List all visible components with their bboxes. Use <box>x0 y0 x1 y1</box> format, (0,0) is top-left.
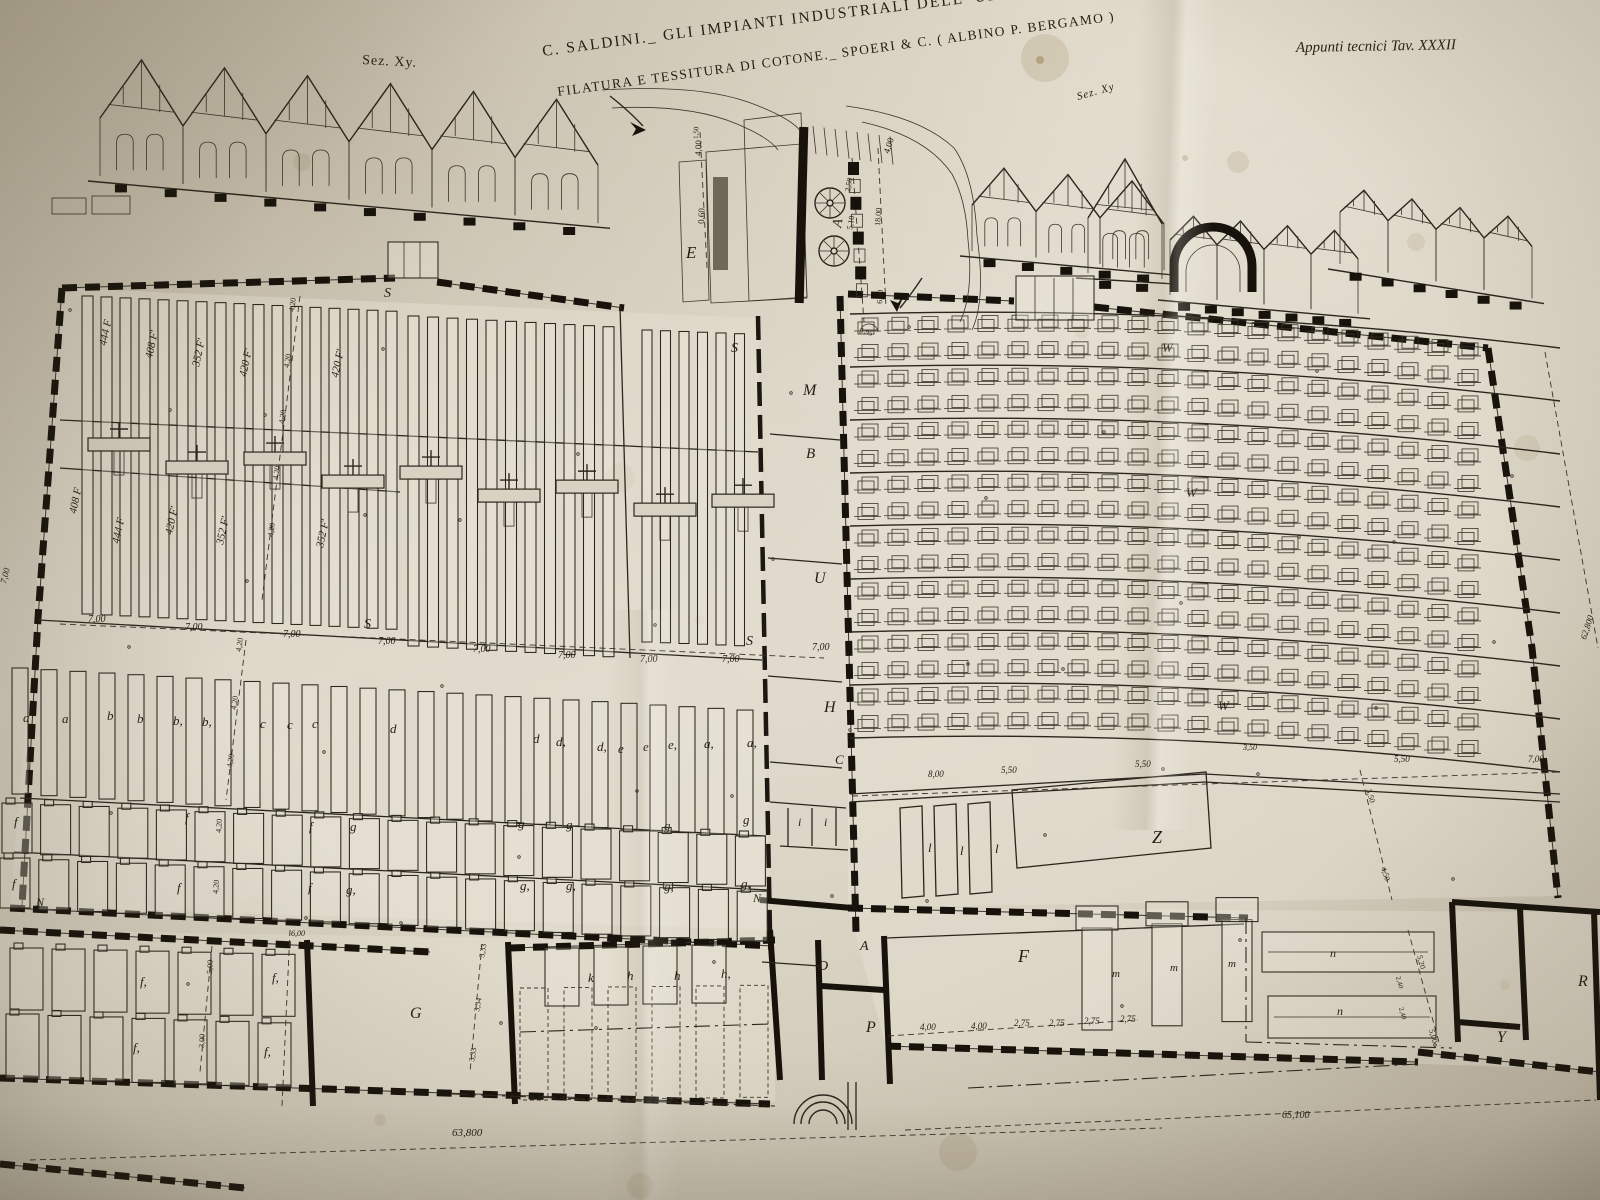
plan-label: d, <box>597 739 607 754</box>
machine <box>697 834 727 884</box>
plan-label: 7,00 <box>1528 754 1544 764</box>
plan-label: n <box>1337 1004 1343 1018</box>
plan-label: b <box>137 711 144 726</box>
plan-label: D <box>817 959 828 974</box>
plan-label: d <box>390 721 397 736</box>
plan-label: 18,00 <box>873 208 883 227</box>
plan-label: 4,00 <box>920 1022 936 1032</box>
plan-label: 4,00 <box>881 136 896 155</box>
plan-label: f, <box>133 1040 140 1055</box>
paper-stain <box>1036 56 1044 64</box>
shaft-bracket <box>478 489 540 502</box>
plan-label: C <box>835 752 844 767</box>
plan-label: 2,75 <box>1049 1018 1065 1028</box>
plan-label: c <box>312 716 318 731</box>
machine <box>155 865 185 915</box>
spinning-machine-row <box>563 700 579 826</box>
plan-label: 2,75 <box>1120 1014 1136 1024</box>
spinning-machine-row <box>418 692 434 818</box>
spinning-machine-row <box>389 690 405 816</box>
shaft-bracket <box>634 503 696 516</box>
plan-label: B <box>806 446 815 462</box>
machine <box>427 877 457 927</box>
plan-label: a, <box>704 736 714 751</box>
machine <box>220 953 253 1015</box>
machine <box>310 872 340 922</box>
plan-label: d, <box>556 734 566 749</box>
plan-label: 7,00 <box>185 622 203 633</box>
spinning-machine-row <box>621 703 637 829</box>
plan-label: m <box>1112 968 1120 980</box>
paper-stain <box>1182 155 1188 161</box>
plan-label: 7,00 <box>473 644 491 655</box>
plan-label: 8,00 <box>928 769 944 779</box>
spinning-machine-row <box>447 693 463 819</box>
plan-label: 7,00 <box>640 654 658 665</box>
plan-canvas: EA4,001,500,604,002,505,1018,006,001,954… <box>0 0 1600 1200</box>
plan-label: 6,00 <box>875 290 885 305</box>
machine <box>118 808 148 858</box>
machine <box>78 861 108 911</box>
section-right-a <box>960 168 1176 282</box>
shaft-bracket <box>712 494 774 507</box>
plan-label: 4,00 <box>693 139 704 156</box>
spinning-machine-row <box>506 321 517 651</box>
plan-label: 65,100 <box>1282 1110 1310 1121</box>
plan-label: M <box>802 382 818 399</box>
section-right-saw2 <box>1328 190 1544 309</box>
spinning-machine-row <box>486 320 497 650</box>
machine <box>156 810 186 860</box>
plan-label: l <box>995 841 999 856</box>
plan-label: 5,00 <box>205 960 215 974</box>
machine <box>465 824 495 874</box>
spinning-machine-row <box>177 301 188 619</box>
plan-label: S <box>384 286 391 301</box>
plan-label: m <box>1228 958 1236 970</box>
plan-label: g <box>664 818 671 833</box>
spinning-machine-row <box>679 707 695 833</box>
shaft-bracket <box>88 438 150 451</box>
plan-label: g, <box>520 878 530 893</box>
machine <box>1082 928 1112 1030</box>
machine <box>643 946 677 1004</box>
plan-drawing: EA4,001,500,604,002,505,1018,006,001,954… <box>0 34 1600 1199</box>
spinning-machine-row <box>186 678 202 804</box>
machine <box>542 827 572 877</box>
spinning-machine-row <box>215 680 231 806</box>
plan-label: g <box>350 819 357 834</box>
spinning-machine-row <box>386 311 397 629</box>
machine <box>545 948 579 1006</box>
spinning-machine-row <box>70 671 86 797</box>
plate-reference: Appunti tecnici Tav. XXXII <box>1295 37 1457 56</box>
section-left <box>88 60 610 235</box>
flow-arrow <box>610 96 643 126</box>
plan-label: 2,75 <box>1014 1018 1030 1028</box>
spinning-machine-row <box>525 322 536 652</box>
plan-label: 5,50 <box>1394 754 1410 764</box>
plan-label: c <box>260 716 266 731</box>
plan-label: S <box>746 634 753 649</box>
machine <box>620 831 650 881</box>
paper-stain <box>1407 233 1425 251</box>
plan-label: b, <box>202 714 212 729</box>
machine <box>698 889 728 939</box>
shaft-bracket <box>400 466 462 479</box>
machine <box>582 884 612 934</box>
paper-stain <box>627 1173 653 1199</box>
plan-label: l <box>928 840 932 855</box>
spinning-machine-row <box>716 333 726 645</box>
plan-label: 63,800 <box>452 1127 483 1139</box>
spinning-machine-row <box>128 675 144 801</box>
plan-label: a <box>23 710 30 725</box>
plan-label: A <box>859 939 869 954</box>
machine <box>41 805 71 855</box>
plan-label: 7,00 <box>722 654 740 665</box>
plan-label: a, <box>747 735 757 750</box>
plan-label: i <box>798 815 801 829</box>
plan-label: P <box>865 1019 876 1036</box>
plan-label: e <box>643 739 649 754</box>
machine <box>1152 924 1182 1026</box>
plan-label: 1,50 <box>692 126 700 139</box>
spinning-machine-row <box>467 319 478 649</box>
spinning-machine-row <box>99 673 115 799</box>
plan-label: 3,00 <box>197 1034 207 1048</box>
plan-label: g <box>566 817 573 832</box>
spinning-machine-row <box>331 687 347 813</box>
plan-fragment <box>52 198 86 214</box>
plan-label: 5,50 <box>1001 765 1017 775</box>
machine <box>427 822 457 872</box>
plan-label: S <box>731 341 738 356</box>
plan-label: 5,10 <box>845 215 856 230</box>
plan-label: W <box>1186 485 1198 500</box>
machine <box>48 1015 81 1079</box>
spinning-machine-row <box>698 332 708 644</box>
plan-label: 7,00 <box>0 566 12 584</box>
plan-label: l <box>960 843 964 858</box>
machine <box>594 947 628 1005</box>
spinning-machine-row <box>545 324 556 654</box>
machine <box>234 813 264 863</box>
plan-label: f, <box>272 970 279 985</box>
paper-stain <box>374 1114 386 1126</box>
paper-stain <box>1021 34 1069 82</box>
plan-label: 4,00 <box>971 1021 987 1031</box>
plan-label: 0,60 <box>696 207 707 224</box>
plan-label: g <box>518 816 525 831</box>
plan-label: e, <box>668 737 677 752</box>
dimension-line <box>30 1128 1162 1160</box>
plan-label: A <box>830 217 847 229</box>
paper-stain <box>1514 435 1540 461</box>
plan-label: 3,50 <box>1242 743 1257 752</box>
plan-label: i <box>824 815 827 829</box>
plan-label: 4,20 <box>214 819 224 834</box>
plan-label: 4,20 <box>211 880 221 895</box>
spinning-machine-row <box>476 695 492 821</box>
plan-label: W <box>1218 698 1230 713</box>
machine <box>6 1014 39 1078</box>
machine <box>94 950 127 1012</box>
plan-label: c <box>287 717 293 732</box>
plan-label: E <box>685 243 697 262</box>
shaft-bracket <box>166 461 228 474</box>
shaft-bracket <box>244 452 306 465</box>
plan-label: k <box>588 970 594 985</box>
plan-label: S <box>364 617 371 632</box>
plan-label: d <box>533 731 540 746</box>
wall-annex <box>388 242 438 278</box>
plan-label: 7,00 <box>88 614 106 625</box>
machine <box>262 954 295 1016</box>
plan-label: g, <box>741 876 751 891</box>
spinning-machine-row <box>367 310 378 628</box>
canal-strip <box>713 177 728 270</box>
plan-label: 6,00 <box>291 929 305 938</box>
spinning-machine-row <box>592 702 608 828</box>
spinning-machine-row <box>534 698 550 824</box>
paper-stain <box>1227 151 1249 173</box>
plan-label: h <box>627 968 634 983</box>
plan-label: e <box>618 741 624 756</box>
plan-label: N <box>752 891 762 905</box>
spinning-machine-row <box>310 307 321 625</box>
photographed-plate: EA4,001,500,604,002,505,1018,006,001,954… <box>0 0 1600 1200</box>
machine <box>466 879 496 929</box>
paper-stain <box>293 153 311 171</box>
plan-label: g, <box>566 878 576 893</box>
plan-label: g, <box>664 879 674 894</box>
spinning-machine-row <box>679 331 689 643</box>
shaft-bracket <box>322 475 384 488</box>
spinning-machine-row <box>302 685 318 811</box>
plan-label: a <box>62 711 69 726</box>
plan-label: 62,800 <box>1578 614 1595 641</box>
machine <box>116 863 146 913</box>
machine <box>10 948 43 1010</box>
spinning-machine-row <box>273 683 289 809</box>
spinning-machine-row <box>12 668 28 794</box>
dimension-line <box>878 148 886 308</box>
plan-label: 7,00 <box>378 636 396 647</box>
plan-label: 7,00 <box>283 629 301 640</box>
plan-label: m <box>1170 962 1178 974</box>
spinning-machine-row <box>158 300 169 618</box>
shaft-bracket <box>556 480 618 493</box>
plan-label: Z <box>1152 827 1163 847</box>
plan-label: f, <box>264 1044 271 1059</box>
steps <box>813 126 893 165</box>
machine <box>1222 920 1252 1022</box>
spinning-machine-row <box>428 317 439 647</box>
plan-label: n <box>1330 946 1336 960</box>
machine <box>258 1023 291 1087</box>
machine <box>621 886 651 936</box>
dimension-line <box>905 1100 1596 1130</box>
spinning-machine-row <box>360 688 376 814</box>
plan-label: g, <box>346 882 356 897</box>
machine <box>388 820 418 870</box>
plan-label: g <box>743 812 750 827</box>
plan-label: 2,75 <box>1084 1016 1100 1026</box>
spinning-machine-row <box>41 670 57 796</box>
machine <box>311 817 341 867</box>
machine <box>79 806 109 856</box>
machine <box>660 888 690 938</box>
dimension-line <box>1545 352 1598 648</box>
plan-label: b <box>107 708 114 723</box>
spinning-machine-row <box>447 318 458 648</box>
plan-label: 2,50 <box>843 177 854 192</box>
machine <box>658 833 688 883</box>
dimension-line <box>968 1064 1418 1088</box>
spinning-machine-row <box>661 331 671 643</box>
plan-label: N <box>35 895 45 909</box>
plan-label: 7,00 <box>812 642 830 653</box>
spinning-machine-row <box>120 298 131 616</box>
machine <box>272 815 302 865</box>
spinning-machine-row <box>505 697 521 823</box>
section-label-left: Sez. Xy. <box>362 53 418 71</box>
culvert-arch <box>794 1095 852 1124</box>
plan-label: U <box>814 570 827 587</box>
plan-label: R <box>1577 973 1588 990</box>
spinning-machine-row <box>157 676 173 802</box>
machine <box>581 829 611 879</box>
plan-label: 5,50 <box>1135 759 1151 769</box>
plan-label: 7,00 <box>558 650 576 661</box>
spinning-machine-row <box>82 296 93 614</box>
machine <box>216 1021 249 1085</box>
machine <box>52 949 85 1011</box>
machine <box>388 875 418 925</box>
machine <box>504 826 534 876</box>
wall-annex <box>1016 276 1094 320</box>
machine <box>174 1020 207 1084</box>
plan-label: W <box>1162 340 1174 355</box>
plan-label: F <box>1017 946 1030 966</box>
machine <box>233 868 263 918</box>
section-label-right: Sez. Xy <box>1076 81 1117 103</box>
plan-label: h, <box>721 966 731 981</box>
machine <box>90 1017 123 1081</box>
plan-label: h <box>674 968 681 983</box>
plan-label: b, <box>173 713 183 728</box>
spinning-machine-row <box>650 705 666 831</box>
spinning-machine-row <box>408 316 419 646</box>
spinning-machine-row <box>642 330 652 642</box>
spinning-machine-row <box>244 681 260 807</box>
spinning-machine-row <box>708 708 724 834</box>
plan-label: H <box>823 699 837 716</box>
machine <box>272 870 302 920</box>
section-right-tall <box>1076 159 1174 292</box>
plan-label: G <box>410 1005 422 1022</box>
paper-stain <box>939 1133 977 1171</box>
plan-label: f, <box>140 974 147 989</box>
